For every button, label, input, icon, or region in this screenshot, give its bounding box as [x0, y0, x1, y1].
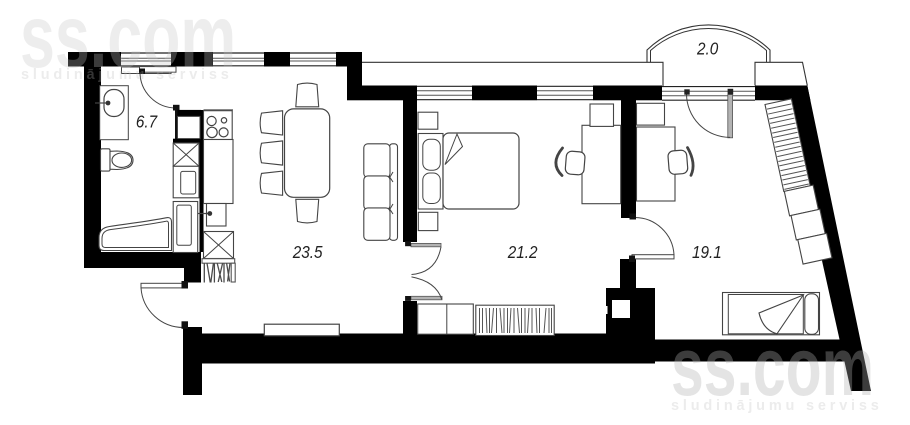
svg-text:sludinājumu serviss: sludinājumu serviss [21, 67, 233, 83]
svg-text:21.2: 21.2 [507, 242, 538, 262]
svg-text:23.5: 23.5 [292, 242, 323, 262]
svg-text:19.1: 19.1 [692, 242, 722, 262]
svg-text:2.0: 2.0 [696, 38, 719, 58]
svg-text:6.7: 6.7 [136, 111, 158, 131]
svg-text:sludinājumu serviss: sludinājumu serviss [671, 398, 883, 414]
